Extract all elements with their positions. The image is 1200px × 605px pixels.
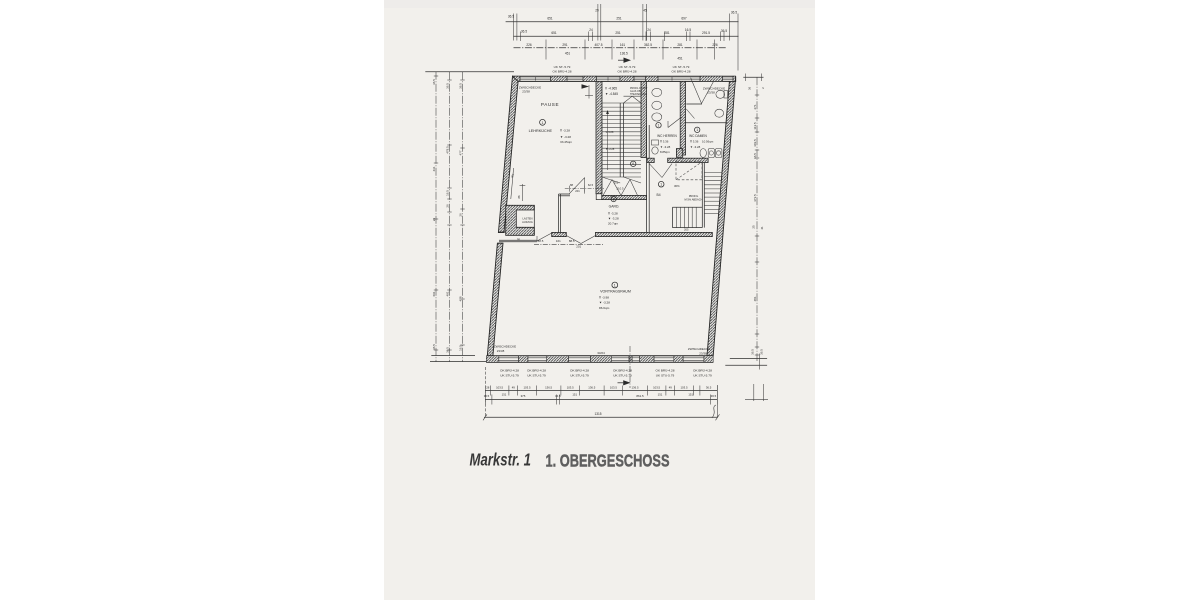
svg-text:▼-3.28: ▼-3.28 xyxy=(606,147,615,151)
svg-text:36.5: 36.5 xyxy=(484,394,490,398)
svg-text:103.5: 103.5 xyxy=(567,385,574,389)
svg-text:36.5: 36.5 xyxy=(521,30,527,34)
svg-text:24: 24 xyxy=(647,28,651,32)
svg-text:451: 451 xyxy=(677,57,683,61)
svg-text:∇ -3.28: ∇ -3.28 xyxy=(607,212,618,216)
svg-text:210.5: 210.5 xyxy=(617,187,624,191)
svg-text:201: 201 xyxy=(576,245,581,249)
svg-text:1. OBERGESCHOSS: 1. OBERGESCHOSS xyxy=(546,451,670,471)
svg-text:651: 651 xyxy=(547,17,553,21)
svg-text:OK BRÜ-4.28: OK BRÜ-4.28 xyxy=(693,369,712,373)
svg-text:UK STU-5.79: UK STU-5.79 xyxy=(613,373,632,377)
svg-text:1315: 1315 xyxy=(594,412,601,416)
svg-text:16.5: 16.5 xyxy=(555,394,561,398)
svg-text:431: 431 xyxy=(432,166,436,171)
svg-text:651: 651 xyxy=(551,31,557,35)
svg-text:478.5: 478.5 xyxy=(445,146,449,154)
svg-text:291: 291 xyxy=(562,43,568,47)
svg-text:36.5: 36.5 xyxy=(760,349,764,355)
svg-text:136.5: 136.5 xyxy=(588,385,595,389)
svg-text:161: 161 xyxy=(556,239,561,243)
svg-text:1: 1 xyxy=(660,183,662,187)
svg-text:23/38: 23/38 xyxy=(707,91,715,95)
svg-text:251: 251 xyxy=(615,31,621,35)
svg-text:1: 1 xyxy=(542,121,544,125)
svg-text:10.56qm: 10.56qm xyxy=(702,140,714,144)
svg-text:∇-3.28: ∇-3.28 xyxy=(605,130,614,134)
svg-text:WC DAMEN: WC DAMEN xyxy=(689,134,707,138)
svg-text:B4: B4 xyxy=(657,193,661,197)
svg-text:62.5: 62.5 xyxy=(588,183,594,187)
svg-text:373.5: 373.5 xyxy=(753,194,757,202)
svg-text:▼ -3.28: ▼ -3.28 xyxy=(660,145,671,149)
svg-text:103.5: 103.5 xyxy=(524,385,531,389)
svg-text:VORTRAGSRAUM: VORTRAGSRAUM xyxy=(600,290,631,294)
svg-text:33/24: 33/24 xyxy=(597,351,605,355)
svg-text:201: 201 xyxy=(575,189,580,193)
svg-text:88.5: 88.5 xyxy=(538,239,544,243)
svg-text:36.5: 36.5 xyxy=(445,347,449,353)
svg-text:36.5: 36.5 xyxy=(458,83,462,89)
svg-text:291.5: 291.5 xyxy=(702,31,710,35)
svg-text:∇ 3.36: ∇ 3.36 xyxy=(659,140,669,144)
svg-text:∇ -4.965: ∇ -4.965 xyxy=(604,87,617,91)
svg-text:36.5: 36.5 xyxy=(706,385,712,389)
svg-text:271: 271 xyxy=(753,104,757,109)
svg-text:23/38: 23/38 xyxy=(497,349,505,353)
svg-text:45: 45 xyxy=(643,9,647,13)
svg-text:36.5: 36.5 xyxy=(721,29,727,33)
svg-text:28: 28 xyxy=(486,385,490,389)
svg-text:861.5: 861.5 xyxy=(636,394,644,398)
svg-text:29: 29 xyxy=(595,9,599,13)
svg-text:UK STU-5.79: UK STU-5.79 xyxy=(527,373,546,377)
svg-text:23/38: 23/38 xyxy=(522,89,530,93)
svg-text:OK BRÜ-4.28: OK BRÜ-4.28 xyxy=(618,69,637,73)
svg-text:1: 1 xyxy=(696,128,698,132)
svg-text:24: 24 xyxy=(589,28,593,32)
svg-text:36.5: 36.5 xyxy=(432,344,436,350)
svg-text:88.5: 88.5 xyxy=(569,239,575,243)
svg-text:691: 691 xyxy=(432,291,436,296)
svg-text:375: 375 xyxy=(521,394,526,398)
svg-text:UK STU-5.79: UK STU-5.79 xyxy=(693,373,712,377)
svg-text:136.5: 136.5 xyxy=(545,385,552,389)
svg-text:16.5: 16.5 xyxy=(685,28,691,32)
svg-text:161: 161 xyxy=(620,43,626,47)
svg-text:∇ -3.98: ∇ -3.98 xyxy=(598,295,609,299)
svg-text:OK BRÜ-4.28: OK BRÜ-4.28 xyxy=(570,369,589,373)
svg-text:88: 88 xyxy=(570,183,573,187)
svg-text:PROFIL: PROFIL xyxy=(689,194,699,198)
svg-text:36.5: 36.5 xyxy=(731,11,737,15)
svg-text:▼ -3.28: ▼ -3.28 xyxy=(599,301,610,305)
svg-text:30%: 30% xyxy=(674,184,680,188)
svg-text:8.85qm: 8.85qm xyxy=(660,150,670,154)
svg-text:478: 478 xyxy=(458,296,462,301)
svg-text:697: 697 xyxy=(681,17,687,21)
svg-text:36.5: 36.5 xyxy=(432,79,436,85)
svg-text:251: 251 xyxy=(616,17,622,21)
svg-text:Markstr. 1: Markstr. 1 xyxy=(470,450,532,470)
svg-text:362.5: 362.5 xyxy=(644,43,652,47)
svg-text:41: 41 xyxy=(760,226,764,230)
svg-text:281: 281 xyxy=(677,43,683,47)
svg-text:451: 451 xyxy=(565,52,571,56)
svg-text:∇ 3.36: ∇ 3.36 xyxy=(689,140,699,144)
svg-text:UK STU-5.79: UK STU-5.79 xyxy=(656,373,675,377)
svg-text:PAUSE: PAUSE xyxy=(541,102,559,107)
svg-text:36.5: 36.5 xyxy=(711,394,717,398)
svg-text:OK BRÜ-4.28: OK BRÜ-4.28 xyxy=(553,69,572,73)
svg-text:OK BRÜ-4.28: OK BRÜ-4.28 xyxy=(656,369,675,373)
svg-text:136.5: 136.5 xyxy=(620,52,628,56)
svg-text:▼ -4.845: ▼ -4.845 xyxy=(605,92,618,96)
svg-text:OK BRÜ-4.28: OK BRÜ-4.28 xyxy=(613,369,632,373)
svg-text:103.5: 103.5 xyxy=(610,385,617,389)
svg-text:OK BRÜ-4.28: OK BRÜ-4.28 xyxy=(672,69,691,73)
svg-text:LEHRKÜCHE: LEHRKÜCHE xyxy=(529,129,553,133)
svg-text:226: 226 xyxy=(712,43,718,47)
svg-text:1: 1 xyxy=(613,197,615,201)
svg-text:36.5: 36.5 xyxy=(751,349,755,355)
svg-text:151: 151 xyxy=(688,392,693,396)
svg-text:UK STU-5.79: UK STU-5.79 xyxy=(500,373,519,377)
svg-text:103.5: 103.5 xyxy=(653,385,660,389)
svg-text:26: 26 xyxy=(432,218,436,222)
svg-text:OK BRÜ-4.28: OK BRÜ-4.28 xyxy=(527,369,546,373)
svg-text:151: 151 xyxy=(502,392,507,396)
svg-text:UK STU-5.79: UK STU-5.79 xyxy=(570,373,589,377)
svg-text:303.5: 303.5 xyxy=(753,139,757,147)
svg-text:GARD.: GARD. xyxy=(609,205,620,209)
svg-text:226: 226 xyxy=(526,43,532,47)
svg-text:49: 49 xyxy=(512,385,516,389)
svg-text:86: 86 xyxy=(517,195,521,198)
svg-text:491: 491 xyxy=(445,291,449,296)
svg-text:AUFZUG: AUFZUG xyxy=(522,220,533,224)
svg-text:113.5: 113.5 xyxy=(753,122,757,130)
svg-text:WC HERREN: WC HERREN xyxy=(657,134,677,138)
svg-text:36: 36 xyxy=(747,87,751,91)
svg-text:86.6qm: 86.6qm xyxy=(599,306,610,310)
svg-text:151: 151 xyxy=(658,392,663,396)
svg-text:201: 201 xyxy=(614,181,619,185)
svg-text:▼ -3.28: ▼ -3.28 xyxy=(608,217,619,221)
svg-text:THEATERSAAL: THEATERSAAL xyxy=(630,93,648,96)
svg-text:23/38: 23/38 xyxy=(699,351,707,355)
svg-text:1: 1 xyxy=(614,284,616,288)
svg-text:∇ -3.28: ∇ -3.28 xyxy=(559,129,570,133)
svg-text:16.5: 16.5 xyxy=(445,190,449,196)
svg-text:36.5: 36.5 xyxy=(508,15,514,19)
svg-text:20.7qm: 20.7qm xyxy=(608,222,619,226)
svg-text:281: 281 xyxy=(664,31,670,35)
svg-text:95: 95 xyxy=(517,238,521,242)
svg-text:OK BRÜ-4.28: OK BRÜ-4.28 xyxy=(500,369,519,373)
svg-text:25: 25 xyxy=(752,225,756,229)
svg-text:▼ -3.28: ▼ -3.28 xyxy=(690,145,701,149)
svg-text:151: 151 xyxy=(572,392,577,396)
svg-text:▼ -3.28: ▼ -3.28 xyxy=(560,135,571,139)
svg-text:49: 49 xyxy=(669,385,673,389)
svg-text:M 5% ABDACH: M 5% ABDACH xyxy=(684,198,702,202)
svg-text:36.5: 36.5 xyxy=(445,83,449,89)
svg-text:16.5: 16.5 xyxy=(753,153,757,159)
svg-text:103.5: 103.5 xyxy=(496,385,503,389)
svg-text:1: 1 xyxy=(658,124,660,128)
svg-text:26: 26 xyxy=(445,204,449,208)
svg-text:481: 481 xyxy=(753,296,757,301)
svg-text:103.5: 103.5 xyxy=(681,385,688,389)
svg-text:477: 477 xyxy=(458,150,462,155)
svg-text:16.5: 16.5 xyxy=(458,345,462,351)
svg-text:407.5: 407.5 xyxy=(595,43,603,47)
svg-text:136.5: 136.5 xyxy=(632,385,639,389)
svg-text:6: 6 xyxy=(632,162,634,166)
svg-text:33.45qm: 33.45qm xyxy=(560,140,572,144)
svg-text:205: 205 xyxy=(684,228,689,232)
svg-text:26: 26 xyxy=(458,213,462,217)
